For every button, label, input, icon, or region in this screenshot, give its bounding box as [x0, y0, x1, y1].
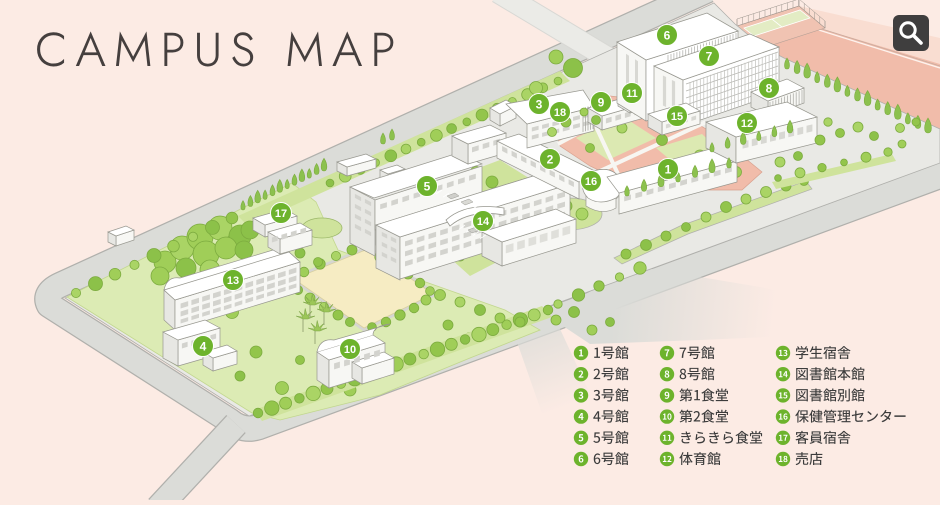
- svg-text:8: 8: [766, 81, 773, 95]
- svg-text:4: 4: [200, 339, 207, 353]
- svg-text:14: 14: [477, 216, 490, 228]
- svg-text:5: 5: [424, 179, 431, 193]
- svg-text:13: 13: [227, 275, 239, 287]
- svg-text:6: 6: [664, 28, 671, 42]
- svg-text:1: 1: [665, 162, 672, 176]
- svg-text:12: 12: [741, 118, 753, 130]
- svg-text:3: 3: [536, 97, 543, 111]
- svg-text:2: 2: [547, 152, 554, 166]
- svg-text:18: 18: [554, 107, 566, 119]
- svg-text:7: 7: [706, 49, 713, 63]
- svg-text:15: 15: [671, 111, 683, 123]
- svg-text:16: 16: [585, 176, 597, 188]
- svg-text:17: 17: [275, 208, 287, 220]
- svg-text:9: 9: [598, 95, 605, 109]
- svg-text:11: 11: [626, 88, 638, 100]
- svg-text:10: 10: [344, 344, 356, 356]
